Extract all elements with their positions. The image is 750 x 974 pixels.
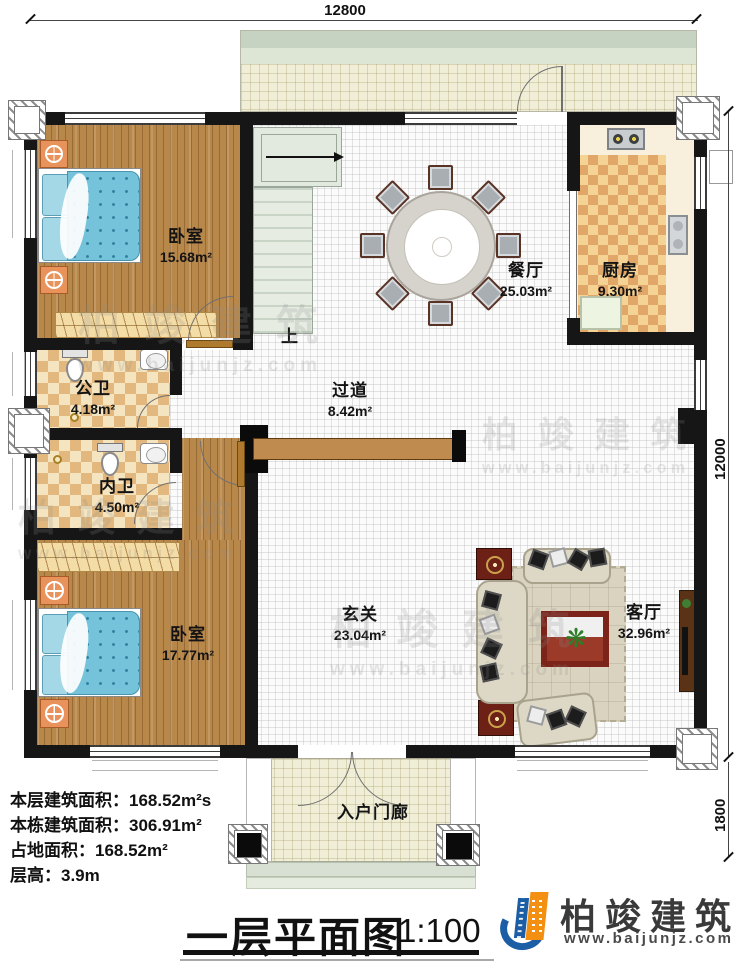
stairs-flight	[253, 187, 313, 334]
terrace	[240, 30, 697, 112]
bed-top	[38, 168, 141, 263]
window-sill	[517, 760, 648, 771]
dimension-right: 12000	[712, 400, 729, 480]
side-table	[476, 548, 512, 580]
dimension-bottom-right: 1800	[712, 772, 729, 832]
flue-symbol	[676, 728, 718, 770]
porch-column	[436, 824, 480, 866]
window-sill	[12, 150, 25, 238]
room-label-corridor: 过道8.42m²	[314, 380, 386, 420]
nightstand	[40, 140, 68, 168]
wall-kitchen-left-upper	[567, 125, 580, 191]
dining-chair	[496, 233, 521, 258]
terrace-roof-band-1	[241, 31, 696, 48]
washbasin	[140, 443, 168, 464]
stairs-up-label: 上	[276, 326, 304, 348]
title-underline-thin	[180, 959, 494, 961]
nightstand	[40, 699, 69, 728]
room-label-bedroom-top: 卧室15.68m²	[150, 226, 222, 266]
wall-bath-private-right	[170, 440, 182, 473]
wall-bedroom-bottom-top	[24, 528, 182, 540]
kitchen-sliding-door	[569, 191, 577, 318]
window-sill	[12, 600, 25, 690]
page-title: 一层平面图	[186, 904, 406, 965]
room-label-foyer: 玄关23.04m²	[324, 604, 396, 644]
room-label-porch: 入户门廊	[318, 802, 428, 824]
info-line: 层高：3.9m	[10, 863, 270, 888]
fridge	[580, 296, 622, 330]
window	[24, 352, 37, 396]
window	[405, 112, 517, 125]
window	[24, 150, 37, 238]
info-line: 本层建筑面积：168.52m²s	[10, 788, 270, 813]
room-label-living: 客厅32.96m²	[604, 602, 684, 642]
washbasin	[140, 349, 168, 370]
bed-bottom	[38, 608, 141, 697]
window	[90, 745, 220, 758]
wall-kitchen-left-lower	[567, 318, 580, 332]
wall-bedroom-bottom-right	[245, 438, 258, 745]
info-line: 本栋建筑面积：306.91m²	[10, 813, 270, 838]
flue-symbol	[676, 96, 720, 140]
window-sill	[12, 458, 25, 510]
room-label-bath-public: 公卫4.18m²	[60, 378, 126, 418]
room-label-bath-private: 内卫4.50m²	[84, 476, 150, 516]
flue-symbol	[8, 408, 50, 454]
kitchen-sink	[668, 215, 688, 255]
dimension-line-top	[30, 20, 698, 21]
dining-chair	[360, 233, 385, 258]
plant-icon: ❋	[561, 623, 591, 653]
terrace-floor	[241, 64, 696, 111]
wall-bedroom-top-right	[240, 125, 253, 350]
door-leaf-line	[561, 66, 563, 112]
nightstand	[40, 576, 69, 605]
floor-drain	[53, 455, 62, 464]
wall-stub	[233, 338, 253, 350]
brand-logo: 柏竣建筑 www.baijunjz.com	[498, 886, 748, 962]
side-table	[478, 700, 514, 736]
window	[694, 157, 707, 209]
dining-chair	[428, 165, 453, 190]
dimension-top: 12800	[300, 2, 390, 19]
dining-chair	[428, 301, 453, 326]
logo-url: www.baijunjz.com	[564, 930, 733, 947]
coffee-table: ❋	[541, 611, 609, 667]
toilet-tank	[97, 443, 123, 452]
logo-icon	[498, 890, 556, 954]
window-sill	[92, 760, 218, 771]
door-leaf	[186, 340, 233, 348]
window	[515, 745, 650, 758]
title-underline-thick	[183, 950, 479, 955]
window	[24, 458, 37, 510]
flue-symbol	[8, 100, 46, 140]
wall-bath-public-right	[170, 350, 182, 395]
wardrobe-bottom	[37, 542, 180, 572]
window	[24, 600, 37, 690]
window-sill	[12, 352, 25, 396]
porch-step	[246, 877, 476, 889]
wall-kitchen-bottom	[567, 332, 707, 345]
wall-bedroom-top-bottom	[24, 338, 182, 350]
nightstand	[40, 266, 68, 294]
wall-pier-right	[678, 408, 694, 444]
half-wall-cap-right	[452, 430, 466, 462]
room-label-kitchen: 厨房9.30m²	[584, 260, 656, 300]
stairs-up-arrow	[266, 152, 346, 162]
half-wall	[253, 438, 453, 460]
stove	[607, 128, 645, 150]
room-label-dining: 餐厅25.03m²	[488, 260, 564, 300]
info-line: 占地面积：168.52m²	[10, 838, 270, 863]
floor-plan-canvas: 上	[0, 0, 750, 974]
door-leaf	[237, 441, 245, 487]
door-opening	[517, 112, 567, 125]
room-label-bedroom-bottom: 卧室17.77m²	[152, 624, 224, 664]
toilet-tank	[62, 349, 88, 358]
dining-table	[386, 191, 496, 301]
info-block: 本层建筑面积：168.52m²s 本栋建筑面积：306.91m² 占地面积：16…	[10, 788, 270, 888]
window	[65, 112, 205, 125]
terrace-roof-band-2	[241, 48, 696, 64]
title-scale: 1:100	[398, 912, 481, 950]
window	[694, 360, 707, 410]
right-wall-niche	[709, 150, 733, 184]
